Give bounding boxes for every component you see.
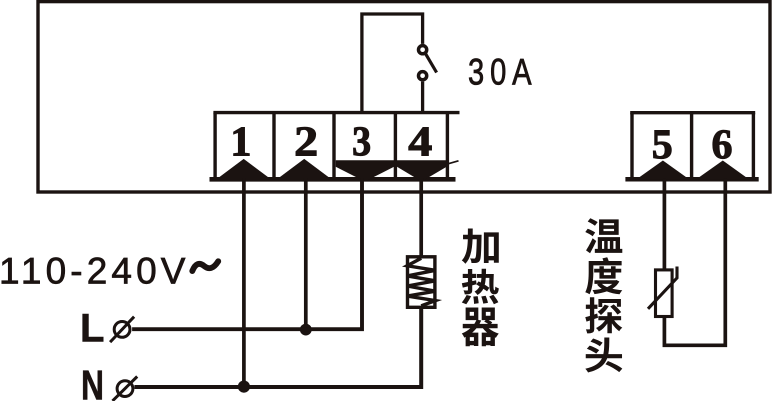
svg-text:3: 3 <box>352 120 371 166</box>
svg-text:2: 2 <box>294 120 318 166</box>
svg-text:N: N <box>81 362 104 401</box>
svg-text:1: 1 <box>230 120 251 166</box>
svg-text:30A: 30A <box>468 51 538 92</box>
svg-text:L: L <box>80 306 104 350</box>
svg-text:110-240V: 110-240V <box>0 251 190 292</box>
svg-text:4: 4 <box>408 120 432 166</box>
